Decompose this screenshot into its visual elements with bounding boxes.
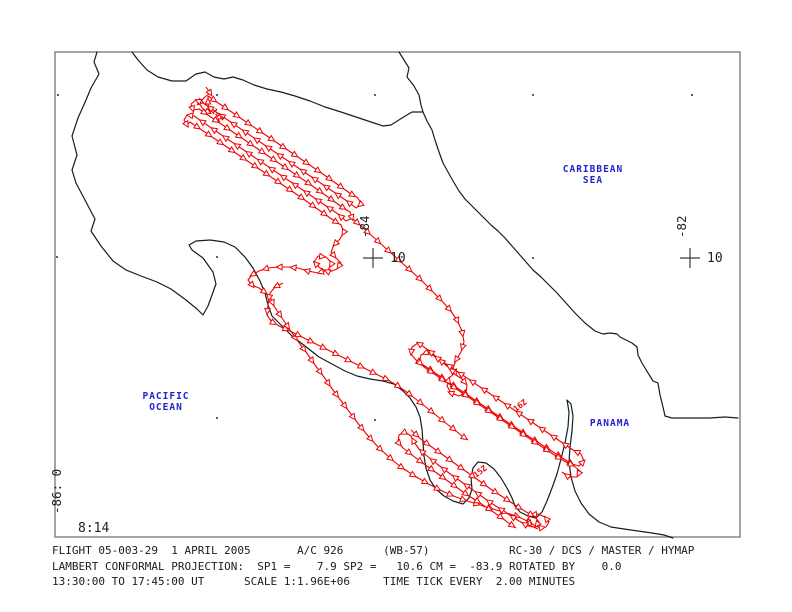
flight-track-plot-screen: -8410-8210-86: 08:14CARIBBEANSEAPACIFICO… xyxy=(0,0,792,612)
time-tick-arrow xyxy=(245,120,251,126)
grid-dot xyxy=(56,256,58,258)
time-tick-arrow xyxy=(480,481,486,487)
time-tick-arrow xyxy=(286,186,292,192)
time-tick-arrow xyxy=(327,206,333,212)
time-tick-arrow xyxy=(318,269,324,274)
time-tick-arrow xyxy=(315,199,321,205)
grid-dot xyxy=(216,417,218,419)
time-tick-arrow xyxy=(275,178,281,184)
time-tick-arrow xyxy=(539,525,545,531)
time-tick-arrow xyxy=(455,356,460,362)
time-tick-arrow xyxy=(326,175,332,181)
grid-dot xyxy=(216,256,218,258)
grid-dot xyxy=(374,419,376,421)
time-tick-arrow xyxy=(435,448,441,454)
time-tick-arrow xyxy=(460,496,466,501)
time-tick-arrow xyxy=(446,456,452,462)
grid-dot xyxy=(374,94,376,96)
time-tick-arrow xyxy=(223,136,229,142)
time-tick-arrow xyxy=(492,489,498,494)
time-tick-arrow xyxy=(319,253,325,259)
time-tick-arrow xyxy=(240,155,246,161)
time-tick-arrow xyxy=(304,191,310,197)
time-tick-arrow xyxy=(551,435,557,441)
time-tick-arrow xyxy=(409,349,415,355)
time-tick-arrow xyxy=(320,344,326,349)
time-tick-arrow xyxy=(337,262,343,268)
longitude-label: -84 xyxy=(357,215,372,238)
time-tick-arrow xyxy=(410,471,416,476)
grid-dot xyxy=(532,257,534,259)
track-time-label: 16Z xyxy=(512,397,529,413)
time-tick-arrow xyxy=(341,402,347,408)
time-tick-arrow xyxy=(290,265,296,271)
time-tick-arrow xyxy=(305,180,311,186)
time-tick-arrow xyxy=(528,419,534,425)
time-tick-arrow xyxy=(401,429,407,434)
graticule-crosshair xyxy=(680,248,700,268)
time-tick-arrow xyxy=(316,368,322,374)
time-tick-arrow xyxy=(236,133,242,139)
time-tick-arrow xyxy=(454,317,459,323)
graticule-crosshair xyxy=(363,248,383,268)
time-tick-arrow xyxy=(347,201,353,207)
corner-longitude-label: -86: 0 xyxy=(49,469,64,514)
time-tick-arrow xyxy=(428,466,434,472)
time-tick-arrow xyxy=(316,188,322,194)
time-tick-arrow xyxy=(451,482,457,488)
time-tick-arrow xyxy=(493,396,499,402)
time-tick-arrow xyxy=(337,183,343,189)
time-tick-arrow xyxy=(441,467,447,473)
time-tick-arrow xyxy=(450,425,456,431)
time-tick-arrow xyxy=(461,434,467,440)
time-tick-arrow xyxy=(282,164,288,170)
time-tick-arrow xyxy=(487,500,493,506)
time-tick-arrow xyxy=(406,390,412,396)
time-tick-arrow xyxy=(394,382,400,388)
time-tick-arrow xyxy=(335,193,341,199)
time-tick-arrow xyxy=(522,523,528,528)
time-tick-arrow xyxy=(358,201,364,207)
time-tick-arrow xyxy=(439,474,445,480)
time-tick-arrow xyxy=(515,504,521,509)
time-tick-arrow xyxy=(263,265,269,270)
time-tick-arrow xyxy=(289,161,295,167)
footer-flight-info: FLIGHT 05-003-29 1 APRIL 2005 A/C 926 (W… xyxy=(52,545,694,557)
time-tick-arrow xyxy=(265,308,271,314)
time-tick-arrow xyxy=(481,388,487,394)
time-tick-arrow xyxy=(242,130,248,136)
time-tick-arrow xyxy=(422,478,428,483)
time-tick-arrow xyxy=(281,175,287,181)
flight-track-transit-southeast xyxy=(352,218,584,477)
time-tick-arrow xyxy=(308,357,314,363)
time-tick-arrow xyxy=(510,515,516,520)
time-tick-arrow xyxy=(453,476,459,482)
time-tick-arrow xyxy=(332,350,338,355)
time-tick-arrow xyxy=(324,270,330,275)
time-tick-arrow xyxy=(277,154,283,160)
time-tick-arrow xyxy=(200,120,206,126)
time-tick-arrow xyxy=(539,427,545,433)
time-tick-arrow xyxy=(448,391,454,396)
time-tick-arrow xyxy=(339,204,345,209)
time-tick-arrow xyxy=(417,342,423,348)
time-tick-arrow xyxy=(458,464,464,470)
time-tick-arrow xyxy=(345,357,351,362)
time-tick-arrow xyxy=(423,440,429,446)
time-tick-arrow xyxy=(246,151,252,157)
time-tick-arrow xyxy=(574,451,580,456)
time-tick-arrow xyxy=(257,128,263,134)
time-tick-arrow xyxy=(274,283,280,288)
time-tick-arrow xyxy=(231,122,237,128)
time-tick-arrow xyxy=(222,104,228,110)
geo-label-caribbean: CARIBBEAN xyxy=(563,164,623,175)
time-tick-arrow xyxy=(247,140,253,146)
geo-label-panama: PANAMA xyxy=(590,418,630,429)
time-tick-arrow xyxy=(187,113,193,119)
time-tick-arrow xyxy=(280,143,286,149)
time-tick-arrow xyxy=(254,138,260,144)
time-tick-arrow xyxy=(268,136,274,142)
time-tick-arrow xyxy=(349,413,355,419)
time-tick-arrow xyxy=(194,123,200,129)
time-tick-arrow xyxy=(298,194,304,200)
time-tick-arrow xyxy=(183,121,188,127)
time-tick-arrow xyxy=(261,288,267,294)
time-tick-arrow xyxy=(309,202,315,208)
time-tick-arrow xyxy=(325,380,331,386)
longitude-label: -82 xyxy=(674,215,689,238)
time-tick-arrow xyxy=(412,438,417,444)
corner-latitude-label: 8:14 xyxy=(78,521,109,536)
time-tick-arrow xyxy=(461,344,466,350)
time-tick-arrow xyxy=(358,363,364,368)
geo-label-sea: SEA xyxy=(583,175,603,186)
time-tick-arrow xyxy=(321,210,327,216)
time-tick-arrow xyxy=(291,151,297,157)
time-tick-arrow xyxy=(447,491,453,496)
time-tick-arrow xyxy=(504,496,510,502)
time-tick-arrow xyxy=(224,125,230,131)
time-tick-arrow xyxy=(307,338,313,343)
time-tick-arrow xyxy=(295,332,301,337)
time-tick-arrow xyxy=(300,345,306,351)
time-tick-arrow xyxy=(508,522,514,528)
grid-dot xyxy=(532,94,534,96)
time-tick-arrow xyxy=(252,163,258,169)
latitude-label: 10 xyxy=(390,251,406,266)
time-tick-arrow xyxy=(259,148,265,154)
flight-map-canvas: -8410-8210-86: 08:14CARIBBEANSEAPACIFICO… xyxy=(0,0,792,612)
time-tick-arrow xyxy=(257,159,263,165)
time-tick-arrow xyxy=(269,299,274,305)
time-tick-arrow xyxy=(330,261,335,267)
grid-dot xyxy=(691,94,693,96)
grid-dot xyxy=(57,94,59,96)
time-tick-arrow xyxy=(323,185,329,191)
grid-dot xyxy=(216,94,218,96)
time-tick-arrow xyxy=(475,492,481,498)
time-tick-arrow xyxy=(328,196,334,202)
time-tick-arrow xyxy=(292,183,298,189)
time-tick-arrow xyxy=(314,167,320,173)
time-tick-arrow xyxy=(333,391,339,397)
time-tick-arrow xyxy=(565,474,571,480)
time-tick-arrow xyxy=(234,144,240,150)
time-tick-arrow xyxy=(189,105,194,111)
time-tick-arrow xyxy=(342,229,347,235)
time-tick-arrow xyxy=(276,264,282,270)
time-tick-arrow xyxy=(300,169,306,175)
time-tick-arrow xyxy=(504,403,510,409)
time-tick-arrow xyxy=(395,440,401,446)
time-tick-arrow xyxy=(459,330,465,336)
time-tick-arrow xyxy=(205,131,211,137)
geo-label-pacific: PACIFIC xyxy=(142,391,189,402)
time-tick-arrow xyxy=(577,470,582,476)
time-tick-arrow xyxy=(276,311,282,317)
time-tick-arrow xyxy=(497,513,503,519)
coastline-lake-nicaragua-border xyxy=(132,52,423,126)
time-tick-arrow xyxy=(233,112,239,118)
time-tick-arrow xyxy=(349,191,355,196)
time-tick-arrow xyxy=(312,177,318,183)
time-tick-arrow xyxy=(474,498,480,503)
flight-track-upper-survey-block xyxy=(184,96,549,529)
time-tick-arrow xyxy=(383,375,389,380)
time-tick-arrow xyxy=(462,490,468,496)
time-tick-arrow xyxy=(211,128,217,134)
time-tick-arrow xyxy=(370,369,376,374)
time-tick-arrow xyxy=(464,484,470,490)
time-tick-arrow xyxy=(434,485,440,490)
time-tick-arrow xyxy=(250,271,256,276)
time-tick-arrow xyxy=(229,147,235,153)
time-tick-arrow xyxy=(332,218,338,223)
time-tick-arrow xyxy=(263,170,269,176)
time-tick-arrow xyxy=(304,269,310,274)
time-tick-arrow xyxy=(266,146,272,152)
footer-time-scale-info: 13:30:00 TO 17:45:00 UT SCALE 1:1.96E+06… xyxy=(52,576,575,588)
latitude-label: 10 xyxy=(707,251,723,266)
time-tick-arrow xyxy=(303,159,309,165)
time-tick-arrow xyxy=(269,167,275,173)
time-tick-arrow xyxy=(210,96,216,102)
time-tick-arrow xyxy=(293,172,299,178)
time-tick-arrow xyxy=(217,139,223,145)
time-tick-arrow xyxy=(470,380,476,386)
time-tick-arrow xyxy=(417,457,423,463)
geo-label-ocean: OCEAN xyxy=(149,402,183,413)
footer-projection-info: LAMBERT CONFORMAL PROJECTION: SP1 = 7.9 … xyxy=(52,561,622,573)
time-tick-arrow xyxy=(270,156,276,162)
time-tick-arrow xyxy=(398,464,404,470)
time-tick-arrow xyxy=(405,449,411,455)
